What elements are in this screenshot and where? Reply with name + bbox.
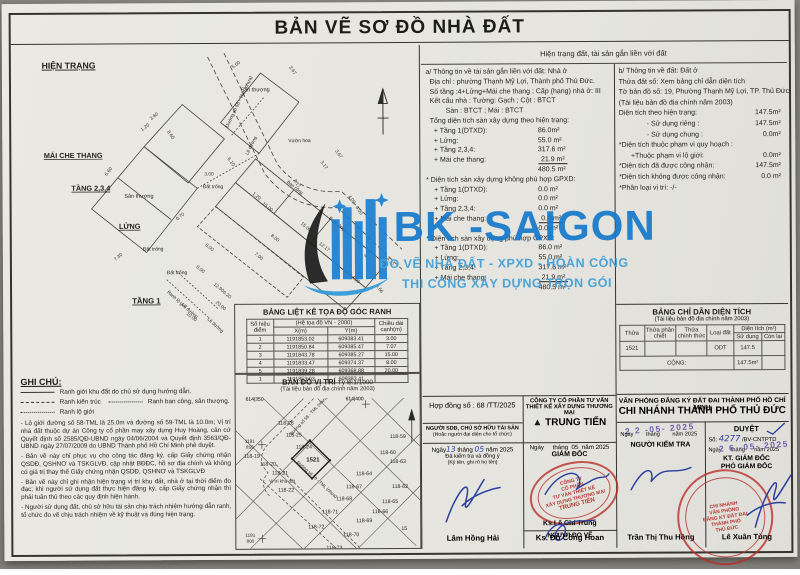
drawing-label: 4.40 <box>363 249 374 260</box>
drawing-label: Đất trống <box>143 247 164 253</box>
note-paragraph: - Bản vẽ này chỉ phục vụ cho công tác đă… <box>21 452 231 476</box>
note-paragraph: - Lộ giới đường số 58-TML là 25.0m và đư… <box>21 419 231 451</box>
drawing-label: 118-65 <box>382 499 398 505</box>
drawing-label: 1191 <box>245 439 255 444</box>
drawing-label: 3.12 <box>385 256 396 267</box>
drawing-label: 118-22 <box>278 488 294 494</box>
drawing-label: 5.00 <box>231 60 242 71</box>
company-brand: ▲ TRUNG TIẾN <box>522 417 616 428</box>
info-line: 480.5 m² <box>427 283 613 294</box>
drawing-label: Đường số 58 - TML (nhựa) <box>224 75 254 129</box>
dashed-line-sample <box>21 401 55 402</box>
drawing-label: Ban công <box>328 216 346 232</box>
handwritten-month: 05 <box>475 445 485 454</box>
drawing-label: Đất trống <box>167 270 188 276</box>
drawing-label: 6.00 <box>354 205 365 216</box>
drawing-label: 8.00 <box>195 264 206 275</box>
drawing-label: 8.60 <box>165 129 176 140</box>
company-sign-cell: Ngày tháng 05 năm 2025 GIÁM ĐỐC CÔNG TYC… <box>522 444 617 548</box>
location-map-box: BẢN ĐỒ VỊ TRÍ Tỷ lệ:1/1000 (Tài liệu bản… <box>234 373 421 550</box>
drawing-label: 4.00 <box>346 194 357 205</box>
coordinate-table-title: BẢNG LIỆT KÊ TỌA ĐỘ GÓC RANH <box>235 307 419 317</box>
deputy-director-name: Lê Xuân Tùng <box>705 532 789 541</box>
drawing-label: 118-21 <box>272 471 288 477</box>
drawing-label: Đất trống <box>203 184 224 190</box>
drawing-label: 118-60 <box>380 450 396 456</box>
area-table-total-row: CỘNG:147.5m² <box>619 355 784 370</box>
drawing-label: 7.00 <box>253 251 264 262</box>
map-north-arrow-icon <box>409 410 415 442</box>
approver-cell: DUYỆT Số: 4277 /BV-CNTPTD Ngày tháng năm… <box>704 421 789 547</box>
drawing-label: 7.30 <box>113 252 124 263</box>
drawing-label: 118-19 <box>244 454 260 460</box>
drawing-label: 6.60 <box>104 166 115 177</box>
drawing-label: Đường số 59 - TML (nhựa) <box>296 460 339 500</box>
owner-sign-cell: Ngày13 tháng 05 năm 2025 Đã kiểm tra và … <box>422 444 523 549</box>
drawing-label: Vườn hoa <box>288 138 311 144</box>
area-table-row: 1521ODT147.5 <box>619 340 784 356</box>
drawing-label: 118-73 <box>326 545 342 549</box>
photo-background: BẢN VẼ SƠ ĐỒ NHÀ ĐẤT <box>0 0 800 569</box>
drawing-label: 118-63 <box>390 459 406 465</box>
drawing-label: 6.20 <box>221 290 232 301</box>
drawing-label: 118-68 <box>336 496 352 502</box>
owner-signature <box>438 469 508 527</box>
drawing-label: 118-20 <box>260 462 276 468</box>
owner-name: Lâm Hồng Hải <box>423 533 523 543</box>
coordinate-table-box: BẢNG LIỆT KÊ TỌA ĐỘ GÓC RANH Số hiệu điể… <box>234 303 420 374</box>
note-paragraph: - Bản vẽ này chỉ ghi nhận hiện trạng vị … <box>21 477 231 501</box>
info-panel: Hiện trạng đất, tài sản gắn liền với đất… <box>420 43 789 549</box>
drawing-label: 1191 <box>245 533 255 538</box>
north-arrow-icon <box>377 89 388 135</box>
director-signature <box>541 466 611 500</box>
drawing-label: TẦNG 2,3,4 <box>71 183 111 193</box>
dotted-line-sample <box>109 401 143 402</box>
office-title2: CHI NHÁNH THÀNH PHỐ THỦ ĐỨC <box>616 405 788 417</box>
drawing-label: 118-70 <box>343 532 359 538</box>
drawing-label: 20.00 <box>214 300 227 313</box>
handwritten-day: 13 <box>446 445 456 454</box>
area-table-subtitle: (Tài liệu bản đồ địa chính năm 2003) <box>616 316 788 323</box>
approve-tick <box>764 421 786 435</box>
area-table: ThửaThửa phân chiếtThửa chính thứcLoại đ… <box>619 324 785 371</box>
notes-section: GHI CHÚ: Ranh giới khu đất do chủ sử dụn… <box>21 376 232 522</box>
drawing-label: 15.00 <box>299 221 312 234</box>
drawing-label: 8.00 <box>269 233 280 244</box>
drawing-label: 0.70 <box>175 211 186 222</box>
building-info-column: a/ Thông tin về tài sản gắn liền với đất… <box>425 68 612 294</box>
drawing-label: 118-66 <box>372 509 388 515</box>
surveyor-name: Ks. Đỗ Công Hoan <box>523 533 617 542</box>
drawing-label: Sân thượng <box>124 194 153 200</box>
drawing-label: 118-24 <box>296 444 312 450</box>
deputy-director-signature <box>725 465 795 535</box>
drawing-label: LỬNG <box>119 222 141 231</box>
drawing-label: 3.17 <box>319 160 330 171</box>
drawing-label: 12.17 <box>318 241 331 254</box>
document-paper: BẢN VẼ SƠ ĐỒ NHÀ ĐẤT <box>2 0 798 561</box>
location-map-drawing: 118-26118-25118-241521118-19118-20118-21… <box>236 398 421 549</box>
company-logo-icon: ▲ <box>532 417 542 428</box>
drawing-label: 118-71 <box>322 509 338 515</box>
drawing-label: 850 <box>246 445 254 450</box>
drawing-label: 8.00 <box>204 242 215 253</box>
info-line: *Phân loại vị trí: -/- <box>619 184 785 195</box>
drawing-label: 118-64 <box>356 471 372 477</box>
company-header: CÔNG TY CỔ PHẦN TƯ VẤN THIẾT KẾ XÂY DỰNG… <box>522 398 616 428</box>
drawing-label: TẦNG 1 <box>132 295 161 305</box>
legend-roadline: Ranh lộ giới <box>21 406 231 417</box>
owner-role-header: NGƯỜI SDĐ, CHỦ SỞ HỮU TÀI SẢN (Hoặc ngườ… <box>422 425 522 438</box>
land-info-column: b/ Thông tin về đất: Đất ởThửa đất số: X… <box>618 67 785 195</box>
drawing-label: 118-67 <box>346 484 362 490</box>
document-title: BẢN VẼ SƠ ĐỒ NHÀ ĐẤT <box>11 11 789 45</box>
drawing-label: HIỆN TRẠNG <box>42 59 96 70</box>
area-table-block: BẢNG CHỈ DẪN DIỆN TÍCH (Tài liệu bản đồ … <box>616 307 788 371</box>
document-frame: BẢN VẼ SƠ ĐỒ NHÀ ĐẤT <box>9 9 794 557</box>
info-panel-header: Hiện trạng đất, tài sản gắn liền với đất <box>420 43 786 65</box>
drawing-label: Lề đường <box>206 317 225 334</box>
drawing-label: 6.66 <box>374 283 385 294</box>
drawing-label: 3.67 <box>333 149 344 160</box>
drawing-label: 118-59 <box>390 434 406 440</box>
drawing-label: 118-72 <box>308 524 324 530</box>
drawing-label: 1.20 <box>140 122 151 133</box>
drawing-panel: HIỆN TRẠNGSân thượngSân thượngMÁI CHE TH… <box>11 45 423 551</box>
drawing-label: 3.67 <box>287 65 298 76</box>
drawing-label: 118-26 <box>278 421 294 427</box>
dotted-line-sample2 <box>21 411 55 412</box>
drawing-label: 3.60 <box>149 111 160 122</box>
drawing-label: 118-69 <box>356 518 372 524</box>
note-paragraph: - Người sử dụng đất, chủ sở hữu tài sản … <box>21 503 231 520</box>
drawing-label: 800 <box>247 539 255 544</box>
drawing-label: 4.00 <box>350 274 361 285</box>
drawing-label: Vị trí khu đất <box>269 479 296 484</box>
solid-line-sample <box>21 391 55 392</box>
drawing-label: 118-62 <box>392 484 408 490</box>
drawing-label: 6.10 <box>226 156 237 167</box>
drawing-label: 15 <box>401 526 407 532</box>
drawing-label: Lề đường <box>245 135 258 156</box>
drawing-label: 1521 <box>306 457 320 463</box>
drawing-label: MÁI CHE THANG <box>44 151 103 160</box>
drawing-label: 3.00 <box>204 171 214 177</box>
contract-number: Hợp đồng số : 68 /TT/2025 <box>422 400 522 410</box>
notes-paragraphs: - Lộ giới đường số 58-TML là 25.0m và đư… <box>21 419 232 520</box>
location-map-subtitle: (Tài liệu bản đồ địa chính năm 2003) <box>236 386 420 393</box>
drawing-label: 1.20 <box>251 191 262 202</box>
